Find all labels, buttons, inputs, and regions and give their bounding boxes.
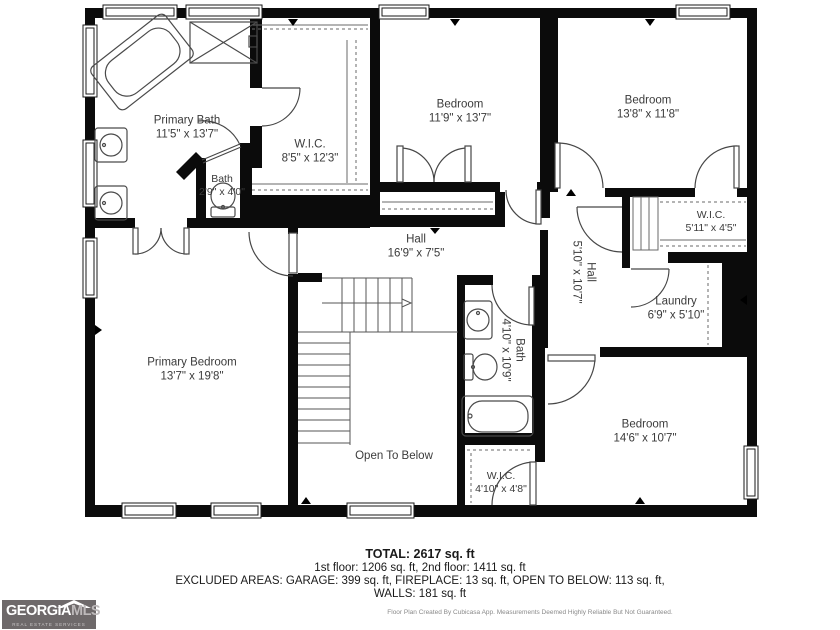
- sink-symbol: [464, 301, 492, 339]
- room-label-wic-right: W.I.C. 5'11" x 4'5": [686, 209, 737, 235]
- logo-brand-secondary: MLS: [71, 603, 100, 619]
- logo-tagline: REAL ESTATE SERVICES: [2, 622, 96, 627]
- summary-floors: 1st floor: 1206 sq. ft, 2nd floor: 1411 …: [0, 562, 840, 575]
- logo-brand-primary: GEORGIA: [6, 603, 71, 619]
- shower-symbol: [190, 22, 257, 63]
- room-label-small-bath: Bath 2'9" x 4'0": [199, 173, 245, 199]
- room-label-primary-bath: Primary Bath 11'5" x 13'7": [154, 114, 220, 143]
- room-name: Hall: [583, 240, 597, 303]
- room-label-bedroom-top-right: Bedroom 13'8" x 11'8": [617, 94, 679, 123]
- room-dims: 4'10" x 10'9": [498, 318, 512, 381]
- sink-symbol: [95, 128, 127, 162]
- room-dims: 8'5" x 12'3": [282, 152, 339, 166]
- room-dims: 11'9" x 13'7": [429, 112, 491, 126]
- summary-total: TOTAL: 2617 sq. ft: [0, 548, 840, 561]
- summary-excluded: EXCLUDED AREAS: GARAGE: 399 sq. ft, FIRE…: [0, 575, 840, 588]
- room-label-hall-main: Hall 16'9" x 7'5": [388, 233, 445, 262]
- room-name: Open To Below: [355, 449, 433, 463]
- room-name: Bedroom: [617, 94, 679, 108]
- room-dims: 16'9" x 7'5": [388, 247, 445, 261]
- summary-walls: WALLS: 181 sq. ft: [0, 588, 840, 601]
- room-dims: 13'8" x 11'8": [617, 108, 679, 122]
- room-label-bedroom-bottom-right: Bedroom 14'6" x 10'7": [613, 418, 676, 447]
- bathtub-symbol: [462, 396, 533, 436]
- room-label-bedroom-top-middle: Bedroom 11'9" x 13'7": [429, 98, 491, 127]
- room-label-wic-bottom: W.I.C. 4'10" x 4'8": [475, 470, 527, 496]
- room-name: Primary Bedroom: [147, 356, 236, 370]
- room-name: Bedroom: [429, 98, 491, 112]
- room-name: Bath: [199, 173, 245, 186]
- room-dims: 5'10" x 10'7": [569, 240, 583, 303]
- room-name: Primary Bath: [154, 114, 220, 128]
- toilet-symbol: [464, 354, 497, 380]
- room-label-open-to-below: Open To Below: [355, 449, 433, 463]
- room-name: Bath: [512, 318, 526, 381]
- room-name: Laundry: [648, 295, 705, 309]
- room-name: Bedroom: [613, 418, 676, 432]
- room-name: W.I.C.: [282, 138, 339, 152]
- disclaimer-text: Floor Plan Created By Cubicasa App. Meas…: [220, 609, 840, 616]
- room-name: Hall: [388, 233, 445, 247]
- room-name: W.I.C.: [475, 470, 527, 483]
- room-dims: 14'6" x 10'7": [613, 432, 676, 446]
- room-label-laundry: Laundry 6'9" x 5'10": [648, 295, 705, 324]
- room-label-wic-primary: W.I.C. 8'5" x 12'3": [282, 138, 339, 167]
- room-label-primary-bedroom: Primary Bedroom 13'7" x 19'8": [147, 356, 236, 385]
- room-name: W.I.C.: [686, 209, 737, 222]
- sink-symbol: [95, 186, 127, 220]
- corner-bathtub-symbol: [88, 12, 195, 112]
- room-dims: 2'9" x 4'0": [199, 186, 245, 199]
- room-dims: 11'5" x 13'7": [154, 128, 220, 142]
- room-dims: 13'7" x 19'8": [147, 370, 236, 384]
- room-dims: 5'11" x 4'5": [686, 222, 737, 235]
- floor-plan-page: Primary Bath 11'5" x 13'7" W.I.C. 8'5" x…: [0, 0, 840, 630]
- room-label-bath-center: Bath 4'10" x 10'9": [498, 318, 527, 381]
- room-dims: 4'10" x 4'8": [475, 483, 527, 496]
- room-label-hall-vertical: Hall 5'10" x 10'7": [569, 240, 598, 303]
- georgia-mls-logo: GEORGIAMLS REAL ESTATE SERVICES: [2, 600, 96, 629]
- room-dims: 6'9" x 5'10": [648, 309, 705, 323]
- floor-plan-drawing: [0, 0, 840, 630]
